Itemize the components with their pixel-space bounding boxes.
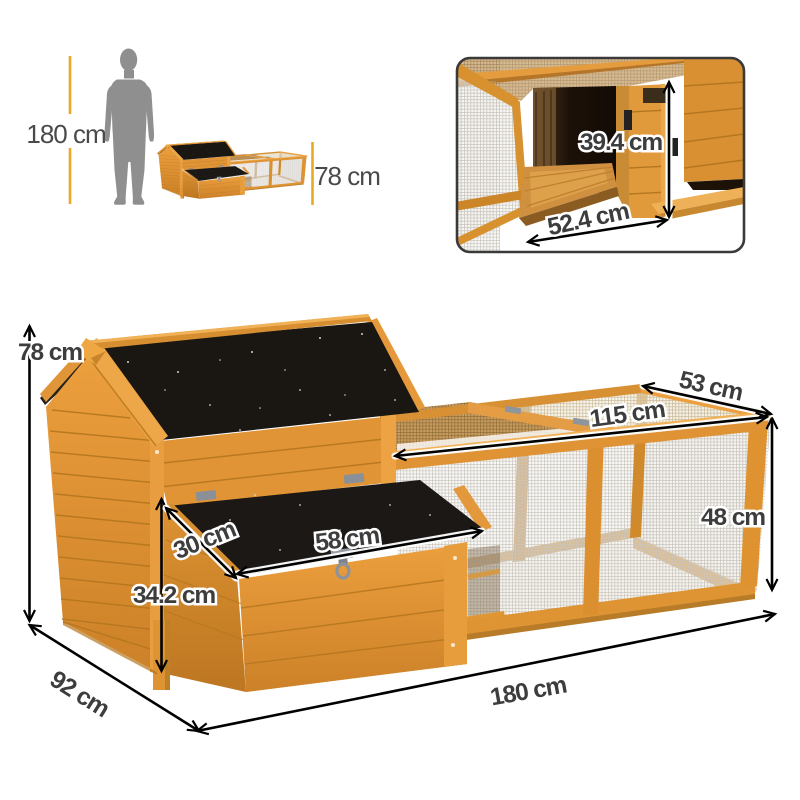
svg-text:180 cm: 180 cm [26,119,105,149]
svg-text:39.4 cm: 39.4 cm [580,129,663,156]
svg-text:92 cm: 92 cm [45,666,114,723]
svg-text:180 cm: 180 cm [488,671,568,711]
svg-text:34.2 cm: 34.2 cm [133,582,216,609]
svg-text:48 cm: 48 cm [701,504,765,531]
svg-text:78 cm: 78 cm [18,339,82,366]
svg-text:78 cm: 78 cm [314,161,380,191]
